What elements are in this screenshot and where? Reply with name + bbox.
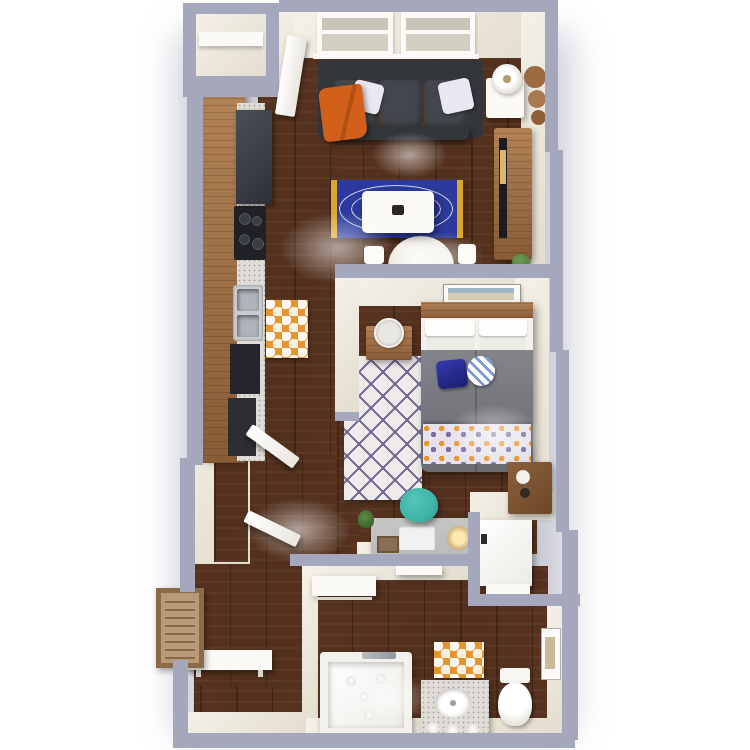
- vanity-faucet: [450, 700, 456, 706]
- toilet-bowl: [498, 682, 532, 726]
- dining-chair-right: [458, 244, 476, 264]
- outer-wall-left-entry: [173, 660, 188, 740]
- wood-slice-wall-decor: [524, 66, 546, 88]
- bath-orange-mat: [434, 642, 484, 678]
- desk-plant: [358, 510, 374, 528]
- art-image: [448, 288, 514, 300]
- burner: [239, 213, 251, 225]
- laptop: [399, 526, 435, 550]
- window-pane: [322, 18, 388, 30]
- door-mat-lines: [165, 597, 195, 659]
- sofa-cushion: [379, 80, 422, 128]
- picture-frame: [377, 536, 399, 553]
- tub-faucet: [362, 652, 396, 659]
- outer-wall-bottom: [173, 733, 575, 748]
- towel-shelf: [396, 566, 442, 575]
- bath-art-image: [545, 637, 555, 669]
- round-basket: [467, 356, 495, 386]
- rug-yellow-edge-left: [331, 180, 337, 238]
- linen-closet-shelf: [312, 576, 376, 596]
- tub-jet: [346, 676, 356, 686]
- patterned-throw-blanket: [423, 424, 531, 464]
- refrigerator: [236, 110, 272, 204]
- marble-vanity: [421, 680, 489, 736]
- coffee-table-decor: [392, 205, 404, 215]
- dresser-towels: [516, 470, 530, 484]
- teal-desk-chair: [400, 488, 438, 522]
- tub-jet: [376, 674, 386, 684]
- outer-wall-right-4: [562, 530, 578, 740]
- pillow: [425, 320, 475, 336]
- double-basin-sink: [233, 285, 263, 341]
- outer-wall-left-kitchen: [187, 95, 203, 465]
- dining-chair-left: [364, 246, 384, 264]
- outer-wall-top: [279, 0, 557, 12]
- tub-jet: [360, 692, 369, 701]
- outer-wall-right-3: [556, 350, 569, 532]
- lamp-base-dot: [503, 75, 511, 83]
- top-left-closet-shelf: [199, 32, 263, 46]
- tub-interior: [328, 662, 404, 728]
- outer-wall-right-2: [550, 150, 563, 352]
- burner: [252, 238, 264, 250]
- bench-leg: [258, 670, 263, 677]
- range-stove: [234, 206, 266, 260]
- wood-dresser: [508, 462, 552, 514]
- entry-door-mat: [156, 588, 204, 668]
- bench-leg: [196, 670, 201, 677]
- bedroom-left-wall-cap: [335, 412, 359, 421]
- orange-throw-blanket: [318, 84, 368, 143]
- bathtub: [320, 652, 412, 736]
- pillow: [479, 320, 527, 336]
- window-sill: [313, 54, 479, 59]
- burner: [252, 216, 262, 226]
- lower-hall-closet-interior: [200, 686, 302, 714]
- bedroom-top-wall: [335, 264, 557, 278]
- tub-jet: [364, 710, 374, 720]
- sink-basin: [237, 289, 259, 311]
- window-pane: [322, 34, 388, 51]
- window-pane: [406, 34, 470, 51]
- wood-slice-wall-decor: [531, 110, 546, 125]
- toilet-tank: [500, 668, 530, 683]
- rug-yellow-edge-right: [457, 180, 463, 238]
- bedroom-bottom-wall: [290, 554, 476, 566]
- outer-wall-left-hall: [180, 458, 195, 592]
- window-left: [317, 12, 393, 56]
- burner: [239, 234, 250, 245]
- toilet: [496, 668, 534, 730]
- dresser-decor: [520, 488, 530, 498]
- blue-accent-pillow: [436, 359, 469, 390]
- window-right: [401, 12, 475, 56]
- floor-plan-render: [0, 0, 750, 750]
- round-mirror: [374, 318, 404, 348]
- outer-wall-right-1: [545, 0, 558, 152]
- bedroom-left-wall: [335, 278, 359, 416]
- wood-slice-wall-decor: [528, 90, 546, 108]
- throw-pillow-right: [437, 77, 475, 115]
- headboard: [421, 302, 533, 318]
- bed: [421, 302, 533, 472]
- lower-cabinet-dark: [230, 344, 260, 394]
- washer-unit: [478, 520, 532, 586]
- sink-basin: [237, 315, 259, 337]
- bath-wall-art: [541, 628, 561, 680]
- kitchen-orange-mat: [266, 300, 308, 358]
- tv-screen-glow: [500, 150, 506, 184]
- closet-rod: [316, 597, 372, 600]
- washer-control-dot: [481, 534, 487, 544]
- window-pane: [406, 18, 470, 30]
